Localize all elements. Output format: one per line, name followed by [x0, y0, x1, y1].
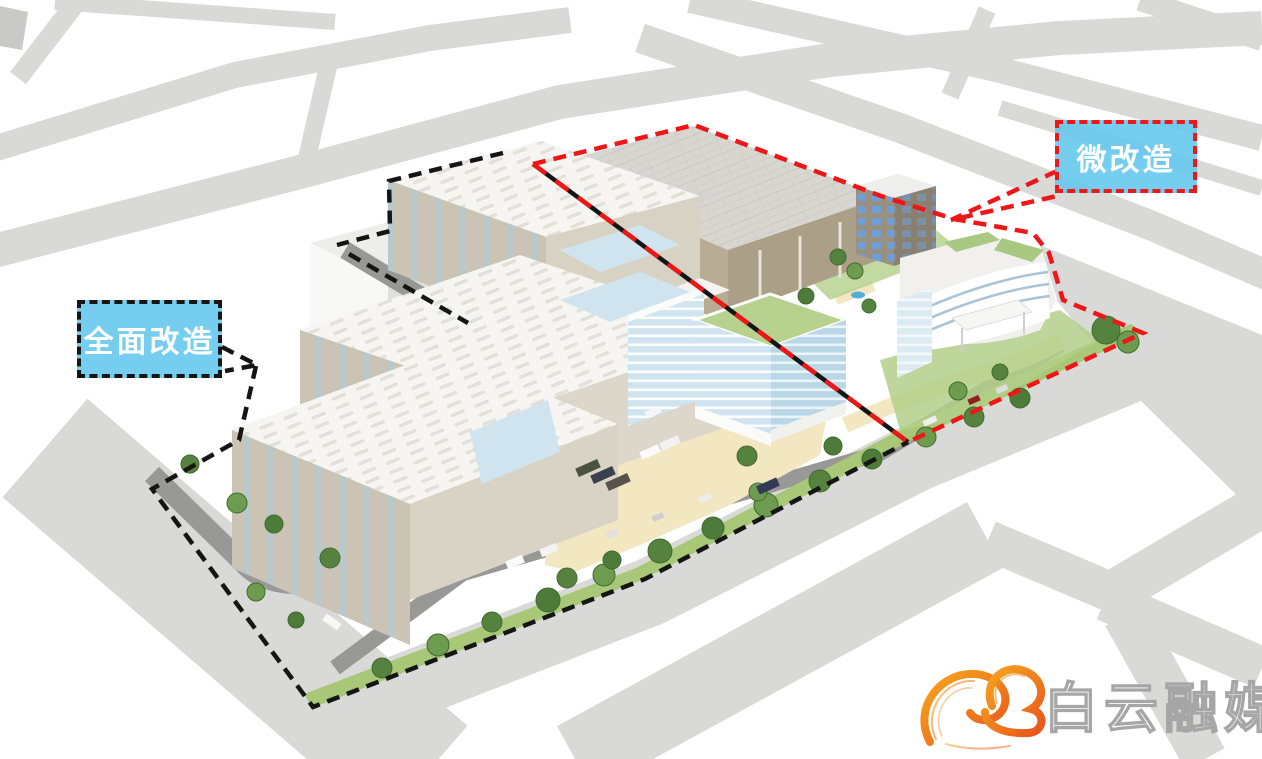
cloud-swirl-icon — [924, 669, 1041, 748]
zone-label-micro-renovation: 微改造 — [1055, 120, 1197, 193]
full-label-pointer — [222, 347, 257, 371]
masterplan-rendering: 白云融媒 全面改造 微改造 — [0, 0, 1262, 759]
logo: 白云融媒 — [924, 669, 1262, 748]
scene-canvas: 白云融媒 — [0, 0, 1262, 759]
zone-label-full-text: 全面改造 — [84, 317, 216, 361]
pond — [851, 292, 865, 299]
zone-label-full-renovation: 全面改造 — [77, 300, 222, 378]
logo-text: 白云融媒 — [1044, 679, 1262, 739]
zone-label-micro-text: 微改造 — [1077, 135, 1176, 179]
